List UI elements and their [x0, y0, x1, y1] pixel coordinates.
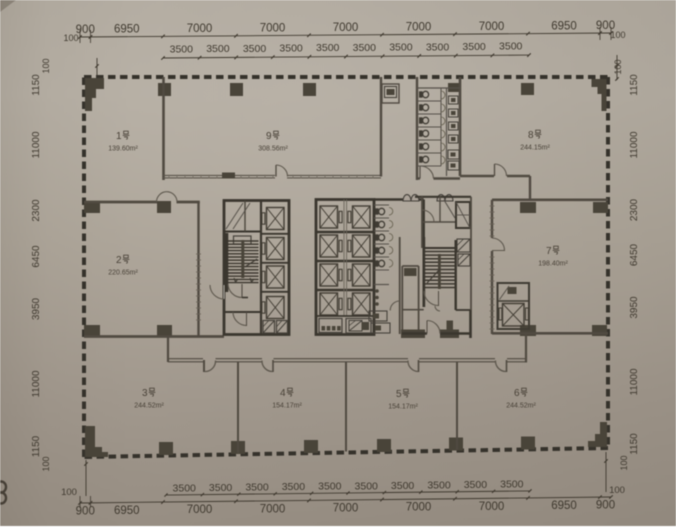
- svg-text:7000: 7000: [479, 21, 505, 33]
- svg-text:2300: 2300: [31, 199, 42, 222]
- svg-text:3500: 3500: [282, 481, 306, 493]
- svg-text:3500: 3500: [206, 43, 230, 55]
- svg-text:154.17m²: 154.17m²: [388, 404, 418, 411]
- svg-text:100: 100: [613, 59, 623, 74]
- svg-text:7000: 7000: [333, 503, 359, 515]
- svg-text:244.15m²: 244.15m²: [520, 145, 550, 152]
- svg-text:7: 7: [546, 246, 552, 257]
- svg-text:7000: 7000: [187, 23, 213, 35]
- svg-text:198.40m²: 198.40m²: [538, 261, 568, 268]
- svg-text:3500: 3500: [389, 42, 413, 54]
- svg-text:100: 100: [619, 455, 629, 470]
- svg-text:900: 900: [76, 505, 95, 517]
- svg-text:244.52m²: 244.52m²: [134, 403, 164, 410]
- svg-text:100: 100: [609, 485, 625, 496]
- svg-text:3950: 3950: [629, 296, 640, 319]
- svg-text:8: 8: [528, 130, 534, 141]
- svg-text:11000: 11000: [629, 368, 640, 396]
- svg-text:3500: 3500: [318, 481, 342, 493]
- svg-text:1150: 1150: [31, 435, 42, 457]
- svg-text:6950: 6950: [551, 500, 577, 512]
- svg-text:900: 900: [76, 24, 95, 36]
- svg-text:3500: 3500: [353, 42, 377, 54]
- svg-text:3500: 3500: [279, 42, 303, 54]
- svg-text:9: 9: [266, 131, 272, 142]
- svg-text:3500: 3500: [427, 479, 451, 491]
- svg-text:139.60m²: 139.60m²: [108, 146, 138, 153]
- svg-text:7000: 7000: [406, 21, 432, 33]
- svg-text:3500: 3500: [500, 479, 524, 491]
- svg-text:7000: 7000: [260, 23, 286, 35]
- svg-text:1150: 1150: [31, 74, 42, 96]
- svg-text:3500: 3500: [170, 43, 194, 55]
- svg-text:220.65m²: 220.65m²: [108, 270, 138, 277]
- svg-text:7000: 7000: [260, 503, 286, 515]
- svg-text:2300: 2300: [629, 198, 640, 221]
- svg-text:2: 2: [116, 255, 122, 266]
- svg-text:100: 100: [63, 33, 78, 43]
- svg-text:3500: 3500: [391, 480, 415, 492]
- svg-text:100: 100: [41, 456, 51, 471]
- svg-text:3500: 3500: [499, 41, 523, 53]
- svg-text:7000: 7000: [406, 502, 432, 514]
- svg-text:3500: 3500: [462, 41, 486, 53]
- svg-text:1150: 1150: [629, 433, 640, 455]
- svg-text:11000: 11000: [31, 131, 42, 159]
- svg-text:900: 900: [596, 500, 615, 512]
- svg-text:3500: 3500: [464, 479, 488, 491]
- svg-text:244.52m²: 244.52m²: [506, 403, 536, 410]
- svg-text:100: 100: [41, 58, 51, 73]
- svg-text:3500: 3500: [243, 43, 267, 55]
- svg-text:1: 1: [116, 131, 122, 142]
- svg-text:3500: 3500: [173, 482, 197, 494]
- svg-text:7000: 7000: [333, 22, 359, 34]
- svg-text:154.17m²: 154.17m²: [272, 403, 302, 410]
- svg-text:100: 100: [61, 487, 77, 498]
- svg-text:3: 3: [142, 388, 148, 399]
- svg-text:100: 100: [610, 30, 625, 40]
- svg-text:5: 5: [396, 389, 402, 400]
- svg-text:4: 4: [280, 388, 286, 399]
- svg-text:3950: 3950: [31, 297, 42, 320]
- svg-text:7000: 7000: [187, 504, 213, 516]
- svg-text:11000: 11000: [629, 131, 640, 159]
- svg-text:6: 6: [514, 388, 520, 399]
- svg-text:11000: 11000: [31, 370, 42, 398]
- svg-text:6950: 6950: [551, 20, 577, 32]
- svg-text:3500: 3500: [245, 482, 269, 494]
- svg-text:3500: 3500: [355, 480, 379, 492]
- svg-text:1150: 1150: [629, 74, 640, 96]
- svg-text:6950: 6950: [114, 24, 140, 36]
- svg-text:7000: 7000: [479, 501, 505, 513]
- svg-text:6450: 6450: [629, 243, 640, 266]
- svg-text:3500: 3500: [209, 482, 233, 494]
- svg-text:308.56m²: 308.56m²: [258, 146, 288, 153]
- svg-text:3500: 3500: [316, 42, 340, 54]
- svg-text:6950: 6950: [114, 505, 140, 517]
- svg-text:6450: 6450: [31, 245, 42, 268]
- svg-text:3500: 3500: [426, 41, 450, 53]
